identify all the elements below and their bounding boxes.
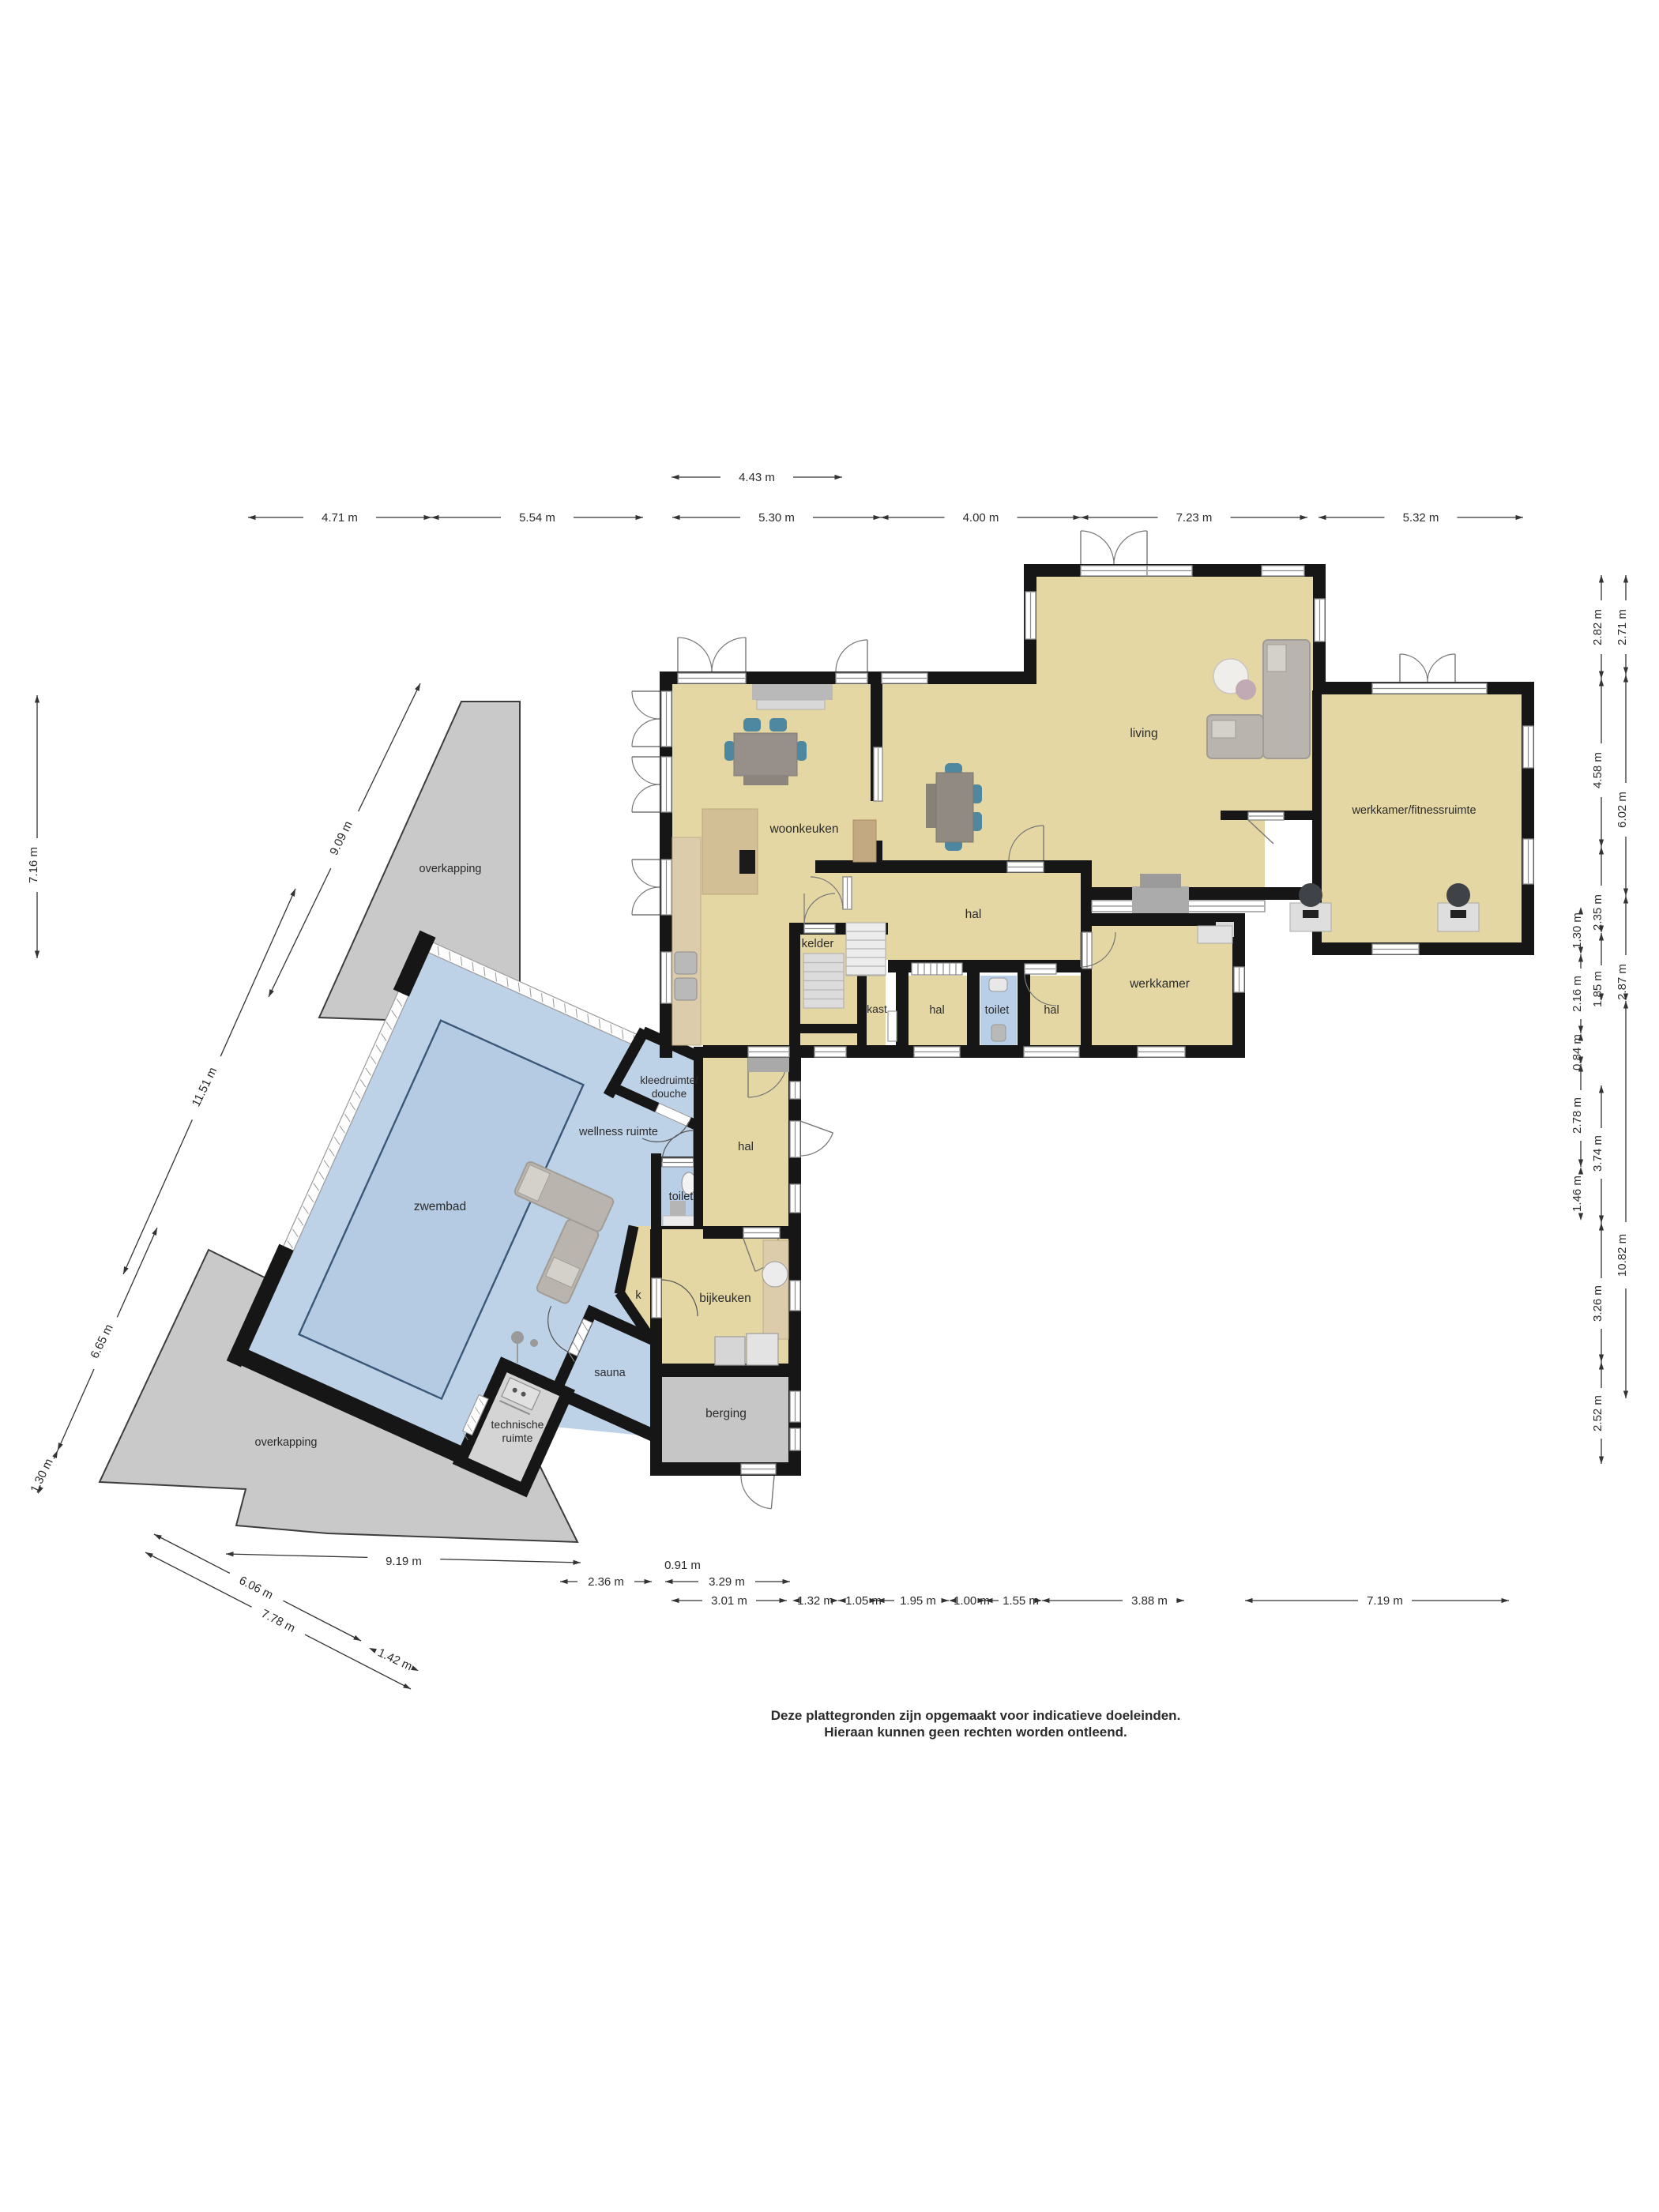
svg-text:kleedruimte/: kleedruimte/ [640,1074,698,1086]
svg-text:10.82 m: 10.82 m [1616,1234,1629,1277]
svg-text:kast: kast [867,1003,887,1015]
svg-text:technische: technische [491,1418,544,1431]
svg-text:1.85 m: 1.85 m [1591,971,1604,1007]
svg-text:2.16 m: 2.16 m [1571,976,1584,1012]
svg-text:overkapping: overkapping [419,863,482,875]
svg-text:Hieraan kunnen geen rechten wo: Hieraan kunnen geen rechten worden ontle… [824,1725,1127,1740]
svg-text:living: living [1130,727,1157,740]
svg-text:5.32 m: 5.32 m [1403,511,1439,525]
svg-text:6.02 m: 6.02 m [1616,792,1629,828]
svg-text:2.52 m: 2.52 m [1591,1395,1604,1431]
svg-text:7.23 m: 7.23 m [1176,511,1213,525]
svg-text:1.00 m: 1.00 m [954,1594,990,1608]
svg-text:5.30 m: 5.30 m [758,511,795,525]
svg-text:7.19 m: 7.19 m [1367,1594,1403,1608]
svg-text:4.00 m: 4.00 m [963,511,999,525]
svg-text:hal: hal [738,1140,754,1153]
svg-text:1.95 m: 1.95 m [900,1594,936,1608]
svg-text:4.43 m: 4.43 m [739,471,775,484]
svg-text:0.91 m: 0.91 m [664,1559,701,1572]
svg-text:k: k [635,1289,641,1302]
svg-text:toilet: toilet [669,1191,694,1203]
svg-text:2.35 m: 2.35 m [1591,894,1604,931]
svg-text:woonkeuken: woonkeuken [769,822,838,836]
svg-text:3.01 m: 3.01 m [711,1594,747,1608]
svg-text:1.05 m: 1.05 m [845,1594,882,1608]
svg-text:hal: hal [965,908,982,921]
svg-text:werkkamer: werkkamer [1129,977,1190,991]
svg-text:bijkeuken: bijkeuken [699,1292,751,1305]
svg-text:zwembad: zwembad [414,1200,466,1213]
svg-text:4.71 m: 4.71 m [322,511,358,525]
svg-text:3.74 m: 3.74 m [1591,1135,1604,1172]
svg-text:2.36 m: 2.36 m [588,1575,624,1589]
svg-text:1.30 m: 1.30 m [1571,912,1584,949]
svg-text:toilet: toilet [985,1004,1010,1017]
svg-text:wellness ruimte: wellness ruimte [578,1126,658,1138]
svg-text:4.58 m: 4.58 m [1591,752,1604,788]
svg-text:2.78 m: 2.78 m [1571,1097,1584,1134]
svg-text:2.87 m: 2.87 m [1616,964,1629,1000]
svg-text:hal: hal [929,1004,944,1017]
svg-text:werkkamer/fitnessruimte: werkkamer/fitnessruimte [1351,804,1476,817]
svg-text:sauna: sauna [594,1367,626,1379]
svg-text:douche: douche [652,1088,687,1100]
svg-text:1.46 m: 1.46 m [1571,1176,1584,1212]
svg-text:9.19 m: 9.19 m [386,1555,422,1568]
svg-text:berging: berging [705,1407,747,1420]
svg-text:overkapping: overkapping [255,1436,318,1449]
svg-text:Deze plattegronden zijn opgema: Deze plattegronden zijn opgemaakt voor i… [771,1708,1181,1723]
svg-text:0.84 m: 0.84 m [1571,1034,1584,1070]
svg-text:5.54 m: 5.54 m [519,511,555,525]
svg-text:2.71 m: 2.71 m [1616,609,1629,645]
svg-text:ruimte: ruimte [502,1431,533,1444]
svg-text:7.16 m: 7.16 m [27,847,40,883]
svg-text:2.82 m: 2.82 m [1591,609,1604,645]
svg-text:1.32 m: 1.32 m [797,1594,833,1608]
svg-text:kelder: kelder [802,937,834,950]
svg-text:3.88 m: 3.88 m [1131,1594,1168,1608]
svg-text:3.29 m: 3.29 m [709,1575,745,1589]
svg-text:hal: hal [1044,1004,1059,1017]
svg-text:3.26 m: 3.26 m [1591,1285,1604,1322]
svg-text:1.55 m: 1.55 m [1003,1594,1039,1608]
